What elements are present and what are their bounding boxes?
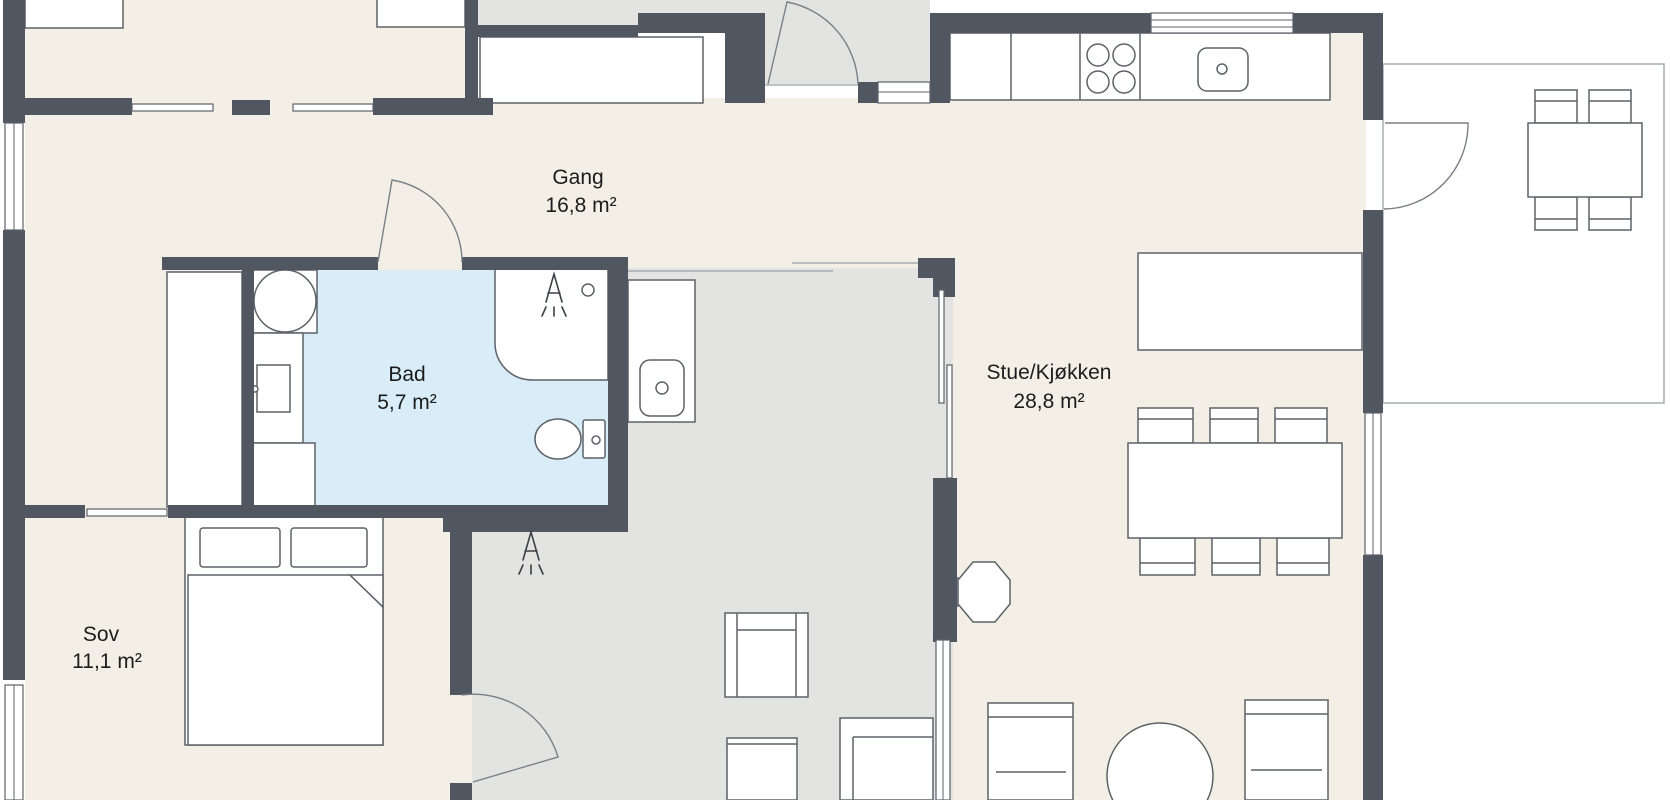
wall-segment	[373, 98, 493, 115]
room-name: Sov	[83, 623, 120, 646]
dining-chair	[1212, 538, 1260, 575]
wall-segment	[608, 257, 628, 510]
outdoor-chair	[1589, 197, 1631, 230]
kitchen-sink	[1198, 48, 1248, 91]
laundry-sink	[640, 360, 684, 416]
room-area: 28,8 m²	[1013, 390, 1084, 413]
kitchen-island	[1138, 253, 1362, 350]
wall-segment	[232, 100, 270, 115]
wall-segment	[25, 505, 85, 518]
wall-segment	[1363, 555, 1383, 800]
room-area: 16,8 m²	[545, 194, 616, 217]
fireplace	[958, 562, 1010, 622]
wall-segment	[1293, 13, 1383, 33]
wall-segment	[25, 98, 132, 115]
pillow	[291, 528, 367, 567]
dining-chairs-bottom	[1140, 538, 1329, 575]
pillow	[200, 528, 280, 567]
toilet-bowl	[535, 419, 581, 459]
wall-segment	[933, 478, 957, 642]
sliding-door	[293, 104, 373, 111]
wall-segment	[725, 33, 765, 103]
terrace-door	[1384, 123, 1468, 209]
toilet-tank	[583, 420, 605, 458]
dining-chair	[1210, 408, 1258, 443]
duvet	[188, 575, 383, 745]
hall-sideboard	[480, 37, 703, 103]
wall-segment	[478, 25, 638, 37]
sliding-door	[132, 104, 213, 111]
window	[1151, 13, 1293, 33]
room-name: Stue/Kjøkken	[987, 361, 1112, 384]
wall-segment	[1363, 210, 1383, 413]
outdoor-table	[1528, 123, 1642, 197]
wall-segment	[3, 230, 25, 680]
washing-machine	[254, 270, 316, 332]
wall-segment	[930, 13, 1151, 33]
wall-segment	[1363, 33, 1383, 120]
wall-segment	[638, 13, 765, 33]
side-chair	[727, 738, 797, 800]
outdoor-chair	[1535, 197, 1577, 230]
terrace-seating	[1528, 90, 1642, 230]
room-name: Gang	[552, 166, 603, 189]
outdoor-chair	[1589, 90, 1631, 123]
armchair	[1245, 700, 1328, 800]
cabinet-door	[257, 365, 290, 412]
dining-chair	[1275, 408, 1327, 443]
room-area: 5,7 m²	[377, 391, 437, 414]
wardrobe	[377, 0, 465, 27]
wall-segment	[462, 257, 628, 270]
sliding-door	[87, 509, 167, 516]
floor-plan: Gang 16,8 m² Bad 5,7 m² Sov 11,1 m² Stue…	[0, 0, 1670, 800]
wall-segment	[465, 0, 478, 103]
dining-chair	[1277, 538, 1329, 575]
dining-chair	[1138, 408, 1193, 443]
dining-chair	[1140, 538, 1195, 575]
bathroom-cabinet	[252, 443, 315, 507]
hall-wardrobe	[167, 272, 242, 507]
wall-segment	[450, 505, 472, 695]
room-name: Bad	[388, 363, 425, 386]
sliding-glass-panel	[947, 365, 952, 478]
wall-segment	[168, 505, 468, 518]
room-area: 11,1 m²	[72, 650, 142, 673]
wall-segment	[162, 257, 378, 270]
dining-chairs-top	[1138, 408, 1327, 443]
sliding-glass-panel	[939, 290, 944, 403]
outdoor-chair	[1535, 90, 1577, 123]
wall-segment	[242, 268, 254, 507]
wall-segment	[3, 0, 25, 123]
wardrobe	[25, 0, 123, 28]
dining-table	[1128, 443, 1342, 538]
wall-segment	[858, 82, 878, 103]
floor-plan-drawing: Gang 16,8 m² Bad 5,7 m² Sov 11,1 m² Stue…	[0, 0, 1670, 800]
wall-segment	[450, 783, 472, 800]
sofa	[840, 718, 933, 800]
